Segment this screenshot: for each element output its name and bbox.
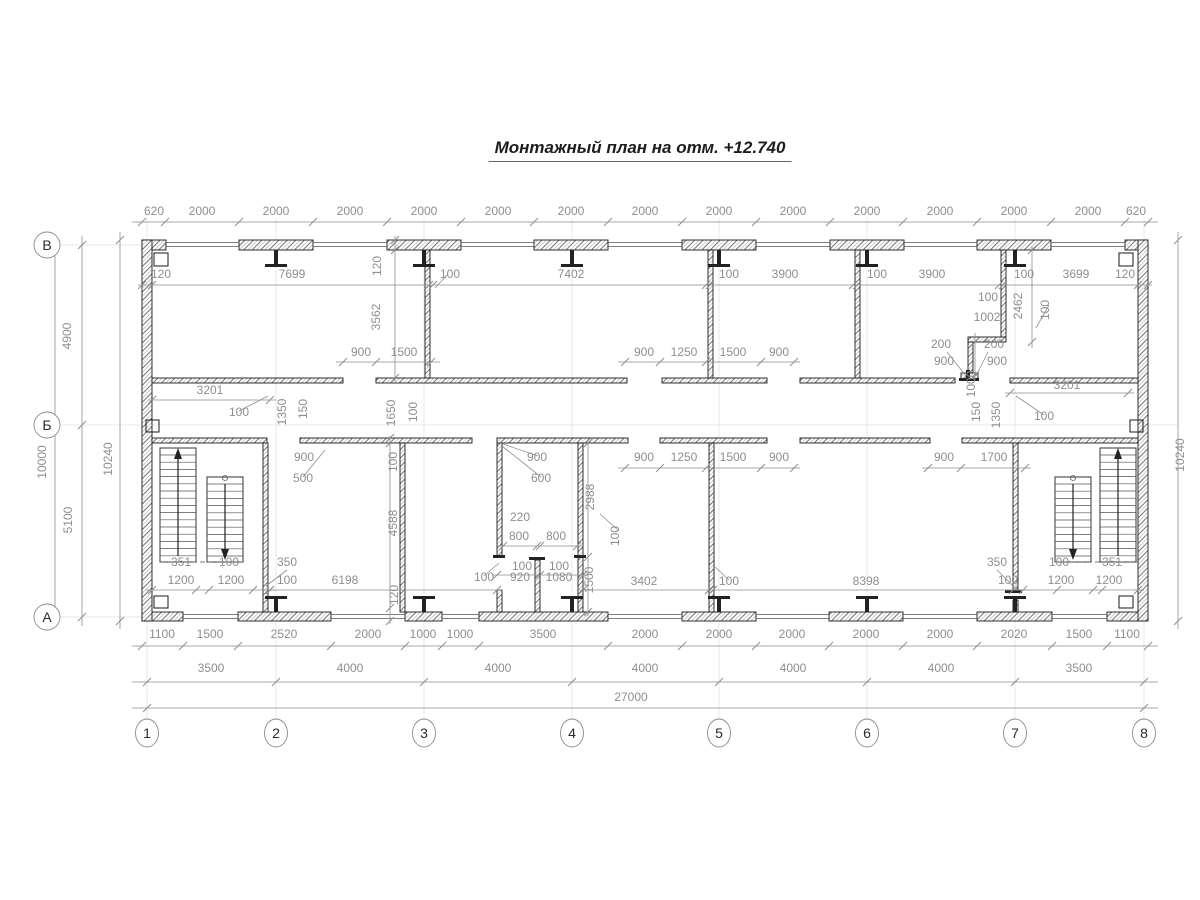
- dim-label: 3402: [631, 574, 658, 588]
- axis-bubble: Б: [34, 412, 60, 438]
- dim-label: 2000: [927, 627, 954, 641]
- dim-label: 900: [769, 345, 789, 359]
- dim-label: 900: [987, 354, 1007, 368]
- dim-label: 2000: [1075, 204, 1102, 218]
- axis-bubble: 5: [708, 719, 731, 747]
- dim-label: 900: [934, 450, 954, 464]
- dim-label: 900: [527, 450, 547, 464]
- dim-label: 4000: [485, 661, 512, 675]
- dim-label: 4000: [928, 661, 955, 675]
- axis-bubble-label: 4: [568, 725, 576, 741]
- dim-label: 1000: [964, 370, 978, 397]
- dim-label: 120: [387, 585, 401, 605]
- dim-label: 100: [1014, 267, 1034, 281]
- dim-label: 2000: [632, 627, 659, 641]
- dim-label: 3900: [919, 267, 946, 281]
- dim-label: 4900: [60, 322, 74, 349]
- dim-label: 120: [151, 267, 171, 281]
- dim-label: 200: [984, 337, 1004, 351]
- dim-label: 620: [144, 204, 164, 218]
- dim-label: 620: [1126, 204, 1146, 218]
- dim-label: 3562: [369, 303, 383, 330]
- dim-label: 920: [510, 570, 530, 584]
- dim-label: 1200: [1048, 573, 1075, 587]
- dim-label: 1200: [218, 573, 245, 587]
- dim-label: 900: [634, 450, 654, 464]
- dim-label: 1700: [981, 450, 1008, 464]
- dim-label: 3500: [198, 661, 225, 675]
- dim-label: 1350: [989, 401, 1003, 428]
- drawing-title: Монтажный план на отм. +12.740: [489, 138, 792, 162]
- dim-label: 2000: [780, 204, 807, 218]
- dim-label: 1000: [410, 627, 437, 641]
- dim-label: 27000: [614, 690, 648, 704]
- dim-label: 10000: [35, 445, 49, 479]
- dim-label: 100: [277, 573, 297, 587]
- dim-label: 1200: [168, 573, 195, 587]
- axis-bubble: 1: [136, 719, 159, 747]
- dim-label: 8398: [853, 574, 880, 588]
- dim-label: 2000: [854, 204, 881, 218]
- axis-bubble-label: 2: [272, 725, 280, 741]
- dim-label: 5100: [61, 506, 75, 533]
- dim-label: 2000: [779, 627, 806, 641]
- dim-label: 1500: [197, 627, 224, 641]
- dim-label: 3699: [1063, 267, 1090, 281]
- dim-label: 2000: [927, 204, 954, 218]
- dim-label: 1250: [671, 345, 698, 359]
- dim-label: 2520: [271, 627, 298, 641]
- dim-label: 1100: [149, 627, 175, 641]
- dim-label: 900: [634, 345, 654, 359]
- axis-bubble-label: В: [42, 237, 51, 253]
- dim-label: 2020: [1001, 627, 1028, 641]
- axis-bubble-label: 6: [863, 725, 871, 741]
- axis-bubble: 4: [561, 719, 584, 747]
- axis-bubble-label: А: [42, 609, 52, 625]
- dim-label: 200: [931, 337, 951, 351]
- dim-label: 2462: [1011, 292, 1025, 319]
- dim-label: 2000: [558, 204, 585, 218]
- axis-bubble-label: 3: [420, 725, 428, 741]
- dim-label: 4588: [386, 509, 400, 536]
- dim-label: 100: [406, 402, 420, 422]
- dim-label: 10240: [1173, 438, 1187, 472]
- dim-label: 100: [1038, 300, 1052, 320]
- floor-plan-canvas: 6202000200020002000200020002000200020002…: [0, 0, 1200, 900]
- dim-label: 900: [294, 450, 314, 464]
- dim-label: 7402: [558, 267, 585, 281]
- dim-label: 2988: [583, 483, 597, 510]
- dim-label: 2000: [337, 204, 364, 218]
- dim-label: 100: [1034, 409, 1054, 423]
- axis-bubble-label: 8: [1140, 725, 1148, 741]
- dim-label: 150: [296, 399, 310, 419]
- dim-label: 900: [351, 345, 371, 359]
- dim-label: 100: [219, 555, 239, 569]
- dim-label: 800: [509, 529, 529, 543]
- dim-label: 3900: [772, 267, 799, 281]
- dim-label: 100: [229, 405, 249, 419]
- dim-label: 10240: [101, 442, 115, 476]
- dim-label: 1500: [1066, 627, 1093, 641]
- dim-label: 7699: [279, 267, 306, 281]
- dim-label: 800: [546, 529, 566, 543]
- axis-bubble: 2: [265, 719, 288, 747]
- dim-label: 2000: [706, 627, 733, 641]
- dim-label: 2000: [853, 627, 880, 641]
- dim-label: 2000: [263, 204, 290, 218]
- axis-bubble-label: 5: [715, 725, 723, 741]
- dim-label: 2000: [189, 204, 216, 218]
- dim-label: 100: [719, 267, 739, 281]
- dim-label: 1080: [546, 570, 573, 584]
- dim-label: 220: [510, 510, 530, 524]
- dim-label: 2000: [1001, 204, 1028, 218]
- axis-bubble: 6: [856, 719, 879, 747]
- dim-label: 100: [440, 267, 460, 281]
- dim-label: 351: [1102, 555, 1122, 569]
- dim-label: 6198: [332, 573, 359, 587]
- dim-label: 350: [277, 555, 297, 569]
- dim-label: 3201: [197, 383, 224, 397]
- axis-bubble: 8: [1133, 719, 1156, 747]
- dim-label: 100: [608, 526, 622, 546]
- dim-label: 120: [1115, 267, 1135, 281]
- dim-label: 600: [531, 471, 551, 485]
- axis-bubble-label: 7: [1011, 725, 1019, 741]
- dim-label: 1650: [384, 399, 398, 426]
- dim-label: 120: [370, 256, 384, 276]
- axis-bubble: В: [34, 232, 60, 258]
- dim-label: 1500: [720, 450, 747, 464]
- dim-label: 1000: [447, 627, 474, 641]
- dim-label: 4000: [632, 661, 659, 675]
- dim-label: 4000: [337, 661, 364, 675]
- dim-label: 900: [934, 354, 954, 368]
- dim-label: 2000: [632, 204, 659, 218]
- dim-label: 2000: [411, 204, 438, 218]
- axis-bubble: А: [34, 604, 60, 630]
- dim-label: 100: [867, 267, 887, 281]
- dim-label: 3500: [530, 627, 557, 641]
- dim-label: 1200: [1096, 573, 1123, 587]
- dim-label: 1002: [974, 310, 1001, 324]
- dim-label: 350: [987, 555, 1007, 569]
- axis-bubble: 7: [1004, 719, 1027, 747]
- dim-label: 351: [171, 555, 191, 569]
- dim-label: 500: [293, 471, 313, 485]
- dim-label: 100: [1049, 555, 1069, 569]
- dim-label: 3500: [1066, 661, 1093, 675]
- dim-label: 1250: [671, 450, 698, 464]
- dim-label: 100: [474, 570, 494, 584]
- dim-label: 900: [769, 450, 789, 464]
- dim-label: 2000: [355, 627, 382, 641]
- dim-label: 1350: [275, 398, 289, 425]
- dim-label: 1500: [720, 345, 747, 359]
- dim-label: 3201: [1054, 378, 1081, 392]
- blueprint-page: 6202000200020002000200020002000200020002…: [0, 0, 1200, 900]
- dim-label: 100: [386, 452, 400, 472]
- dim-label: 2000: [485, 204, 512, 218]
- dim-label: 1500: [582, 566, 596, 593]
- axis-bubble-label: 1: [143, 725, 151, 741]
- axis-bubble-label: Б: [42, 417, 51, 433]
- dim-label: 1100: [1114, 627, 1140, 641]
- dim-label: 4000: [780, 661, 807, 675]
- axis-bubble: 3: [413, 719, 436, 747]
- dim-label: 100: [998, 573, 1018, 587]
- dim-label: 2000: [706, 204, 733, 218]
- dim-label: 150: [969, 402, 983, 422]
- dim-label: 100: [719, 574, 739, 588]
- dim-label: 1500: [391, 345, 418, 359]
- dim-label: 100: [978, 290, 998, 304]
